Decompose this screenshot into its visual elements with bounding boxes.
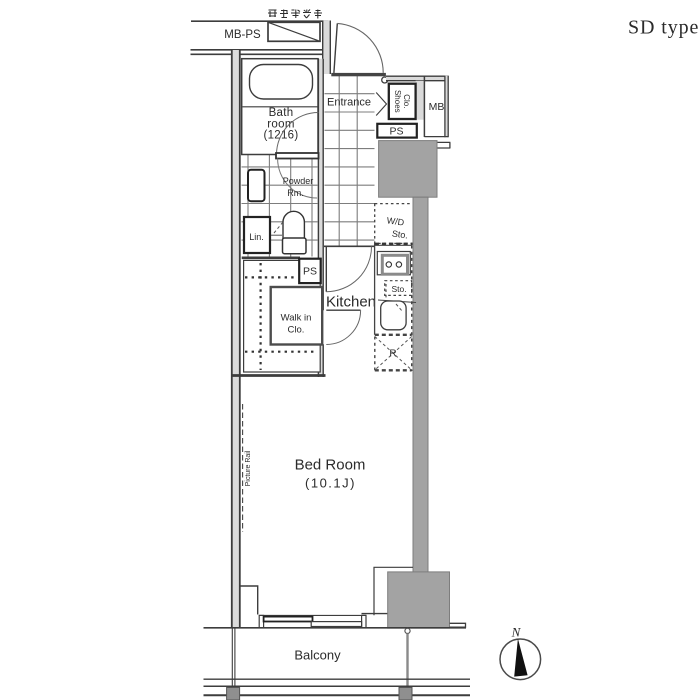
svg-text:PS: PS: [389, 126, 403, 138]
svg-text:Shoes: Shoes: [393, 90, 402, 113]
svg-text:N: N: [511, 625, 522, 640]
svg-text:Picture Rail: Picture Rail: [245, 450, 252, 486]
svg-text:Bath: Bath: [269, 107, 294, 119]
svg-text:(10.1J): (10.1J): [305, 476, 356, 491]
svg-text:Sto.: Sto.: [391, 284, 406, 294]
svg-text:SD type: SD type: [628, 17, 699, 39]
svg-text:MB-PS: MB-PS: [224, 29, 261, 41]
svg-text:MB: MB: [429, 101, 445, 113]
svg-text:Clo.: Clo.: [402, 94, 411, 108]
svg-text:Walk in: Walk in: [281, 313, 312, 324]
svg-text:Clo.: Clo.: [288, 325, 305, 336]
svg-text:Rm.: Rm.: [287, 188, 304, 198]
svg-text:PS: PS: [303, 266, 317, 278]
svg-text:R: R: [389, 349, 396, 360]
svg-text:Kitchen: Kitchen: [326, 294, 376, 311]
svg-text:Balcony: Balcony: [294, 648, 341, 663]
svg-text:Lin.: Lin.: [249, 232, 264, 242]
svg-text:Entrance: Entrance: [327, 97, 371, 109]
svg-text:Bed Room: Bed Room: [295, 457, 366, 474]
svg-text:Powder: Powder: [283, 176, 314, 186]
